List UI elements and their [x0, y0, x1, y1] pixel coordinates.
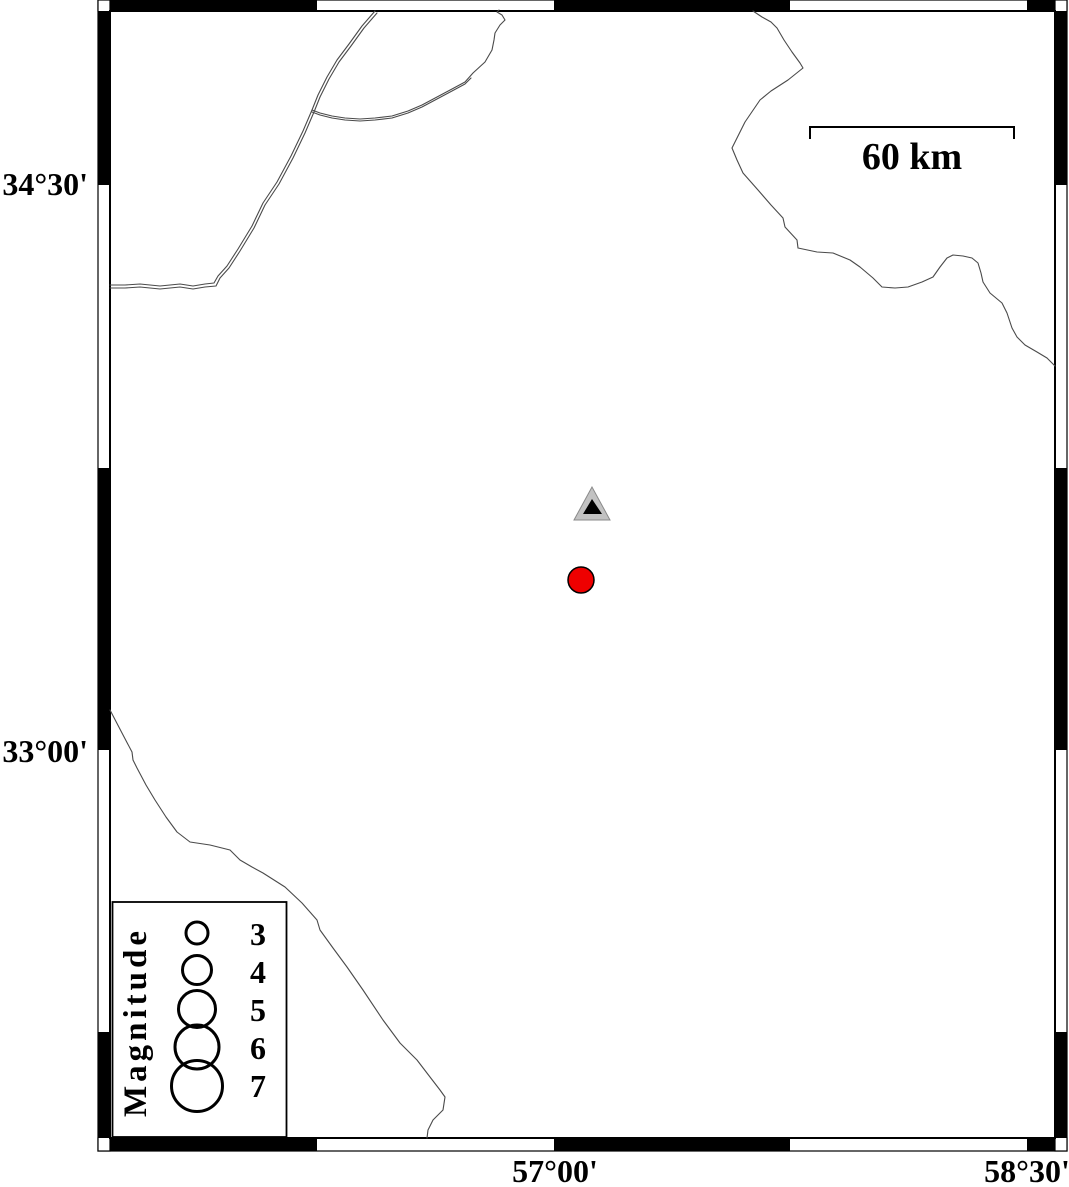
legend-label-mag6: 6: [250, 1030, 266, 1066]
boundary-line: [110, 11, 375, 286]
lon-tick-label-left: 57°00': [512, 1153, 598, 1187]
frame-segment: [1027, 1138, 1055, 1151]
legend-title: Magnitude: [118, 927, 154, 1117]
boundary-line: [312, 78, 471, 121]
frame-segment: [1055, 1032, 1067, 1138]
seismicity-map-figure: 60 km 34°30' 33°00' 57°00' 58°30' Magnit…: [0, 0, 1069, 1187]
frame-segment: [554, 1138, 790, 1151]
boundary-line: [732, 11, 1055, 366]
legend-label-mag4: 4: [250, 954, 266, 990]
legend-label-mag3: 3: [250, 916, 266, 952]
lon-tick-label-right: 58°30': [984, 1153, 1069, 1187]
frame-segment: [98, 11, 110, 185]
scale-bar-label: 60 km: [862, 136, 962, 178]
frame-segment: [98, 1032, 110, 1138]
frame-segment: [554, 0, 790, 11]
frame-segment: [1055, 11, 1067, 185]
legend-label-mag5: 5: [250, 992, 266, 1028]
legend-label-mag7: 7: [250, 1068, 266, 1104]
magnitude-legend: Magnitude 3 4 5 6 7: [113, 902, 287, 1137]
frame-segment: [98, 468, 110, 750]
boundary-line: [312, 10, 505, 119]
lat-tick-label-bottom: 33°00': [2, 733, 88, 769]
frame-segment: [1055, 468, 1067, 750]
frame-segment: [110, 0, 317, 11]
boundary-line: [110, 13, 377, 289]
markers: [568, 487, 610, 593]
frame-segment: [110, 1138, 317, 1151]
epicenter-marker: [568, 567, 594, 593]
lat-tick-label-top: 34°30': [2, 166, 88, 202]
frame-segment: [1027, 0, 1055, 11]
scale-bar: 60 km: [810, 127, 1014, 178]
